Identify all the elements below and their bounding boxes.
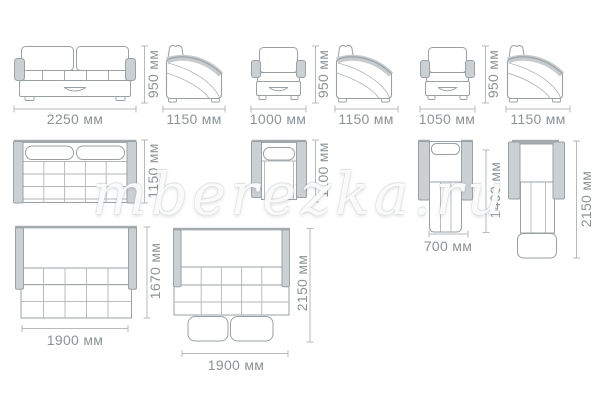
armchair-bed-full-length-view (509, 140, 565, 258)
dim-label-armchair-side-depth: 1150 мм (331, 111, 401, 127)
dim-label-sofa-bed1-width: 1900 мм (40, 332, 110, 348)
dim-label-armchair-top-depth: 1100 мм (315, 135, 331, 205)
armchair-top-view (252, 140, 307, 200)
dim-label-armchair-front-height: 950 мм (315, 39, 331, 109)
dim-label-armchair2-front-height: 950 мм (485, 39, 501, 109)
dim-label-sofa-bed1-length: 1670 мм (147, 236, 163, 306)
dim-label-armchair-bed-total-length: 2150 мм (578, 164, 594, 234)
sofa-bed-unfolded-view-1 (15, 226, 137, 318)
dim-label-sofa-front-width: 2250 мм (40, 111, 110, 127)
dim-label-sofa-bed2-width: 1900 мм (201, 357, 271, 373)
sofa-side-view (167, 46, 222, 102)
sofa-top-view (14, 140, 137, 203)
armchair-bed-unfolded-view (418, 140, 473, 232)
dim-label-armchair-bed-extension-length: 1490 мм (487, 155, 503, 225)
furniture-dimensions-diagram: 2250 мм 950 мм 1150 мм 1000 мм 950 мм 11… (0, 0, 600, 400)
dim-label-armchair2-front-width: 1050 мм (412, 111, 482, 127)
dim-label-armchair2-side-depth: 1150 мм (503, 111, 573, 127)
sofa-bed-unfolded-view-2 (173, 228, 290, 341)
armchair-side-view (337, 46, 392, 102)
sofa-front-view (15, 47, 136, 101)
armchair-front-view (252, 48, 306, 100)
dim-label-armchair-front-width: 1000 мм (243, 111, 313, 127)
dim-label-sofa-bed2-length: 2150 мм (294, 248, 310, 318)
armchair2-front-view (421, 48, 475, 100)
armchair2-side-view (508, 46, 563, 102)
dim-label-sofa-side-depth: 1150 мм (159, 111, 229, 127)
dim-label-armchair-bed-width: 700 мм (413, 238, 483, 254)
dim-label-sofa-top-depth: 1150 мм (145, 136, 161, 206)
dim-label-sofa-front-height: 950 мм (145, 39, 161, 109)
